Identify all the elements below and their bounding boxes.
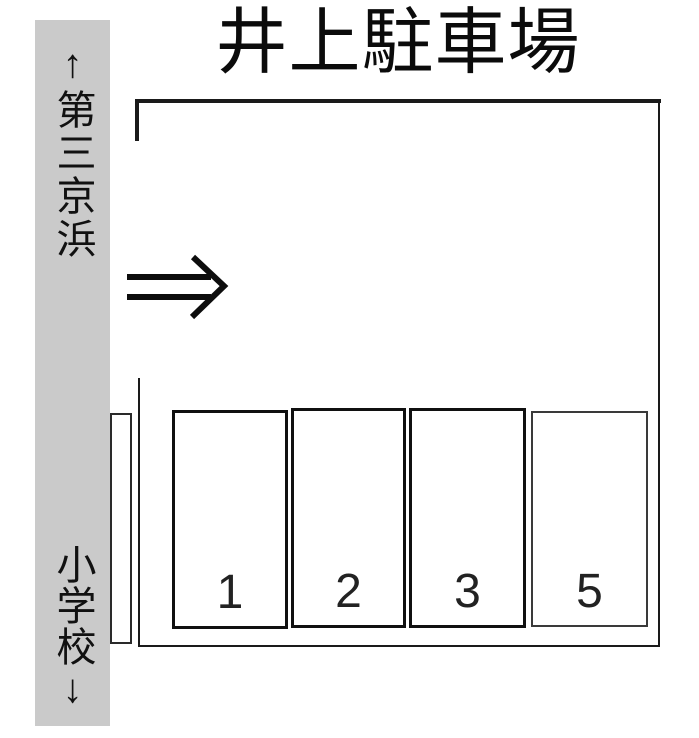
space-number: 3 (412, 568, 523, 616)
parking-space-3: 3 (409, 408, 526, 628)
page-title: 井上駐車場 (136, 4, 660, 83)
space-number: 5 (533, 568, 646, 616)
parking-space-1: 1 (172, 410, 288, 629)
entrance-arrow-icon (127, 257, 224, 317)
road-label-south: 小学校↓ (44, 544, 102, 712)
space-number: 2 (294, 568, 403, 616)
parking-space-2: 2 (291, 408, 406, 628)
road-label-north: ↑第三京浜 (44, 42, 102, 261)
parking-space-5: 5 (531, 411, 648, 627)
fence-rect (110, 413, 132, 644)
space-number: 1 (175, 569, 285, 617)
road-strip: ↑第三京浜 小学校↓ (35, 20, 110, 726)
parking-map: ↑第三京浜 小学校↓ 1 2 3 5 (0, 0, 699, 738)
